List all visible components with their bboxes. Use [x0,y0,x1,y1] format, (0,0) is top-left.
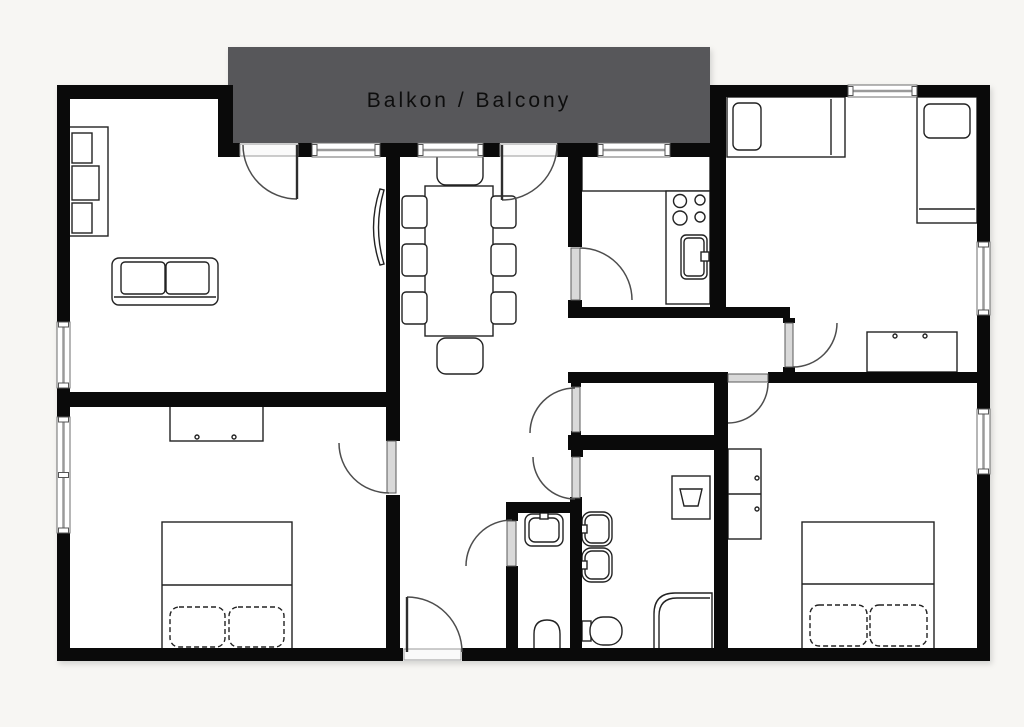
wall-balcony-1 [218,143,240,157]
wall-corridor-bottom-1 [568,372,728,383]
dining-chair-left-1 [402,196,427,228]
wall-left-3 [57,533,70,661]
sofa [112,258,218,305]
window-balcony-living [312,143,380,157]
wall-living-bedroom [57,392,400,407]
bathroom-sink-2 [581,548,612,582]
kitchen-counter-top [582,155,710,191]
wall-bottom-2 [462,648,990,661]
wc-toilet [534,620,560,649]
window-left-living [57,322,70,388]
wall-kitchen-right [710,143,726,318]
window-right-bedroom [977,409,990,474]
wall-corridor-bottom-2 [768,372,978,383]
wall-balcony-4 [483,143,500,157]
wall-bathroom-top [568,435,728,450]
dining-chair-left-3 [402,292,427,324]
bathroom-toilet [582,617,622,645]
wall-kids-door-jamb-1 [783,318,795,323]
wall-wc-top [506,502,582,513]
wall-wc-bath-divider [570,497,582,648]
wall-left-1 [57,85,70,322]
dining-chair-left-2 [402,244,427,276]
wall-top-left [57,85,233,99]
wall-balcony-6 [670,143,712,157]
floor-plan-canvas: Balkon / Balcony [0,0,1024,727]
wall-living-dining-2 [386,495,400,661]
sideboard [170,406,263,441]
wall-balcony-2 [298,143,312,157]
dining-chair-right-2 [491,244,516,276]
wall-bathroom-jamb [571,450,583,457]
wall-corridor-top [568,307,790,318]
wall-bedroom-right-left [714,372,728,648]
wall-right-1 [977,85,990,242]
dining-chair-right-3 [491,292,516,324]
wall-bottom-1 [57,648,403,661]
window-right-kids [977,242,990,315]
wall-closet-jamb-1 [571,383,581,387]
wc-sink [525,513,563,546]
kitchen-sink [681,235,709,279]
single-bed-vertical [917,97,977,223]
window-balcony-dining [418,143,483,157]
wall-unit-shelf [68,127,108,236]
dining-chair-head-bottom [437,338,483,374]
wall-right-2 [977,315,990,409]
wall-kitchen-left [568,143,582,247]
balcony-label: Balkon / Balcony [367,89,571,112]
double-bed-right [802,522,934,649]
dining-chair-right-1 [491,196,516,228]
window-left-bedroom [57,417,70,533]
window-top-kids [848,85,917,97]
floor-plan-page: Balkon / Balcony [0,0,1024,727]
double-bed-left [162,522,292,651]
bathroom-sink-1 [581,512,612,546]
wall-top-right-1 [710,85,848,97]
shower [654,593,712,650]
wardrobe [728,449,761,539]
wall-right-3 [977,474,990,661]
wall-kids-door-jamb-2 [783,367,795,372]
washing-machine [672,476,710,519]
dining-table [425,186,493,336]
single-bed-horizontal [727,97,845,157]
window-balcony-kitchen [598,143,670,157]
dresser [867,332,957,372]
wall-wc-left-2 [506,566,518,648]
